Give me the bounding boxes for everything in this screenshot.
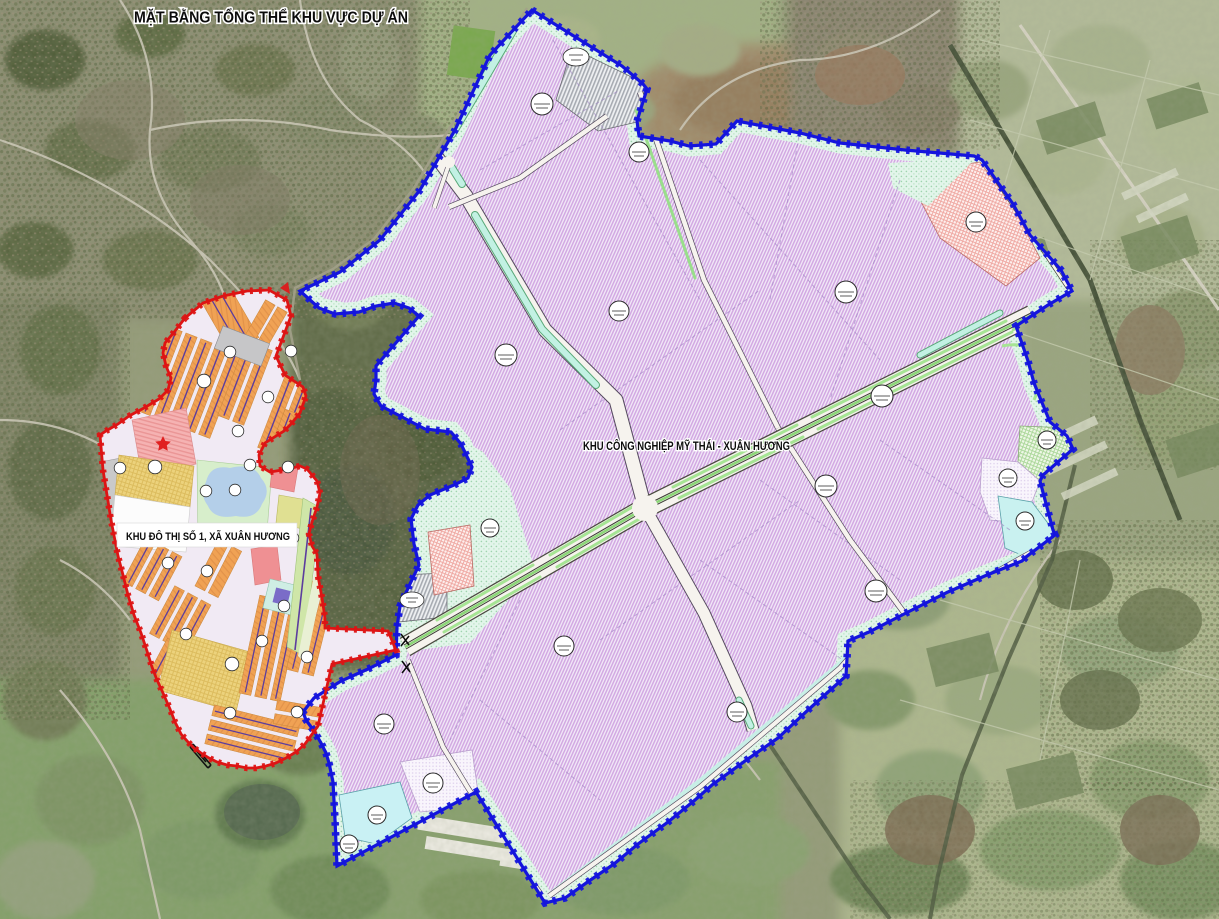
svg-text:KHU CÔNG NGHIỆP MỸ THÁI - XUÂN: KHU CÔNG NGHIỆP MỸ THÁI - XUÂN HƯƠNG <box>583 439 790 453</box>
svg-text:KHU ĐÔ THỊ SỐ 1, XÃ XUÂN HƯƠNG: KHU ĐÔ THỊ SỐ 1, XÃ XUÂN HƯƠNG <box>126 529 290 543</box>
svg-text:MẶT BẰNG TỔNG THỂ KHU VỰC DỰ Á: MẶT BẰNG TỔNG THỂ KHU VỰC DỰ ÁN <box>134 9 408 27</box>
